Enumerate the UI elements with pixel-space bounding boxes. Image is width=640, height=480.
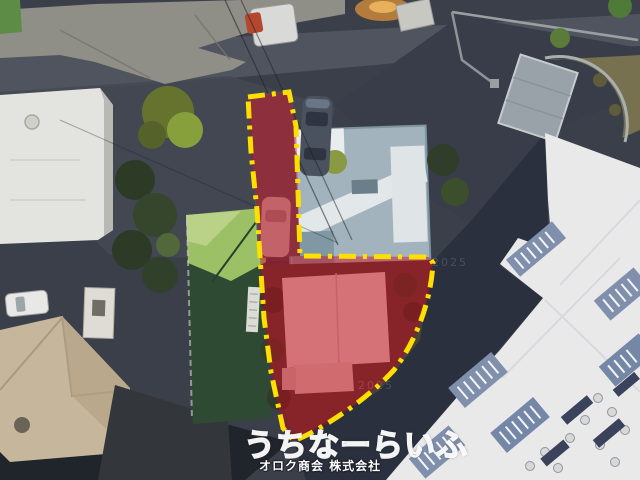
tree-dark [441,178,469,206]
tree-dark [133,193,177,237]
tree [156,233,180,257]
watermark-company: オロク商会 株式会社 [259,457,381,474]
tree-dark [142,257,178,293]
imagery-year-watermark: 2025 [358,379,394,392]
imagery-year-watermark: 2025 [432,256,468,269]
water-tank [14,417,30,433]
tree-dark [427,144,459,176]
tree-nw-corner [0,0,22,34]
aerial-photo-container: 2025 2025 うちなーらいふ オロク商会 株式会社 [0,0,640,480]
windshield [306,111,329,126]
tree-large-highlight [167,112,203,148]
lit-awning-core [369,1,397,13]
stair-structure [246,287,260,333]
vehicle-red-top [244,12,263,34]
shrub-ne [550,28,570,48]
rooftop-ac-unit [25,115,39,129]
grass-blotch [609,104,621,116]
building-small-white [83,287,115,338]
curb-block [490,79,499,88]
rooftop-unit [351,179,377,194]
tree [138,121,166,149]
car-white [5,290,49,317]
building-west-white [0,88,113,244]
aerial-photo [0,0,640,480]
roof-white-e [390,146,427,243]
window [92,300,106,316]
